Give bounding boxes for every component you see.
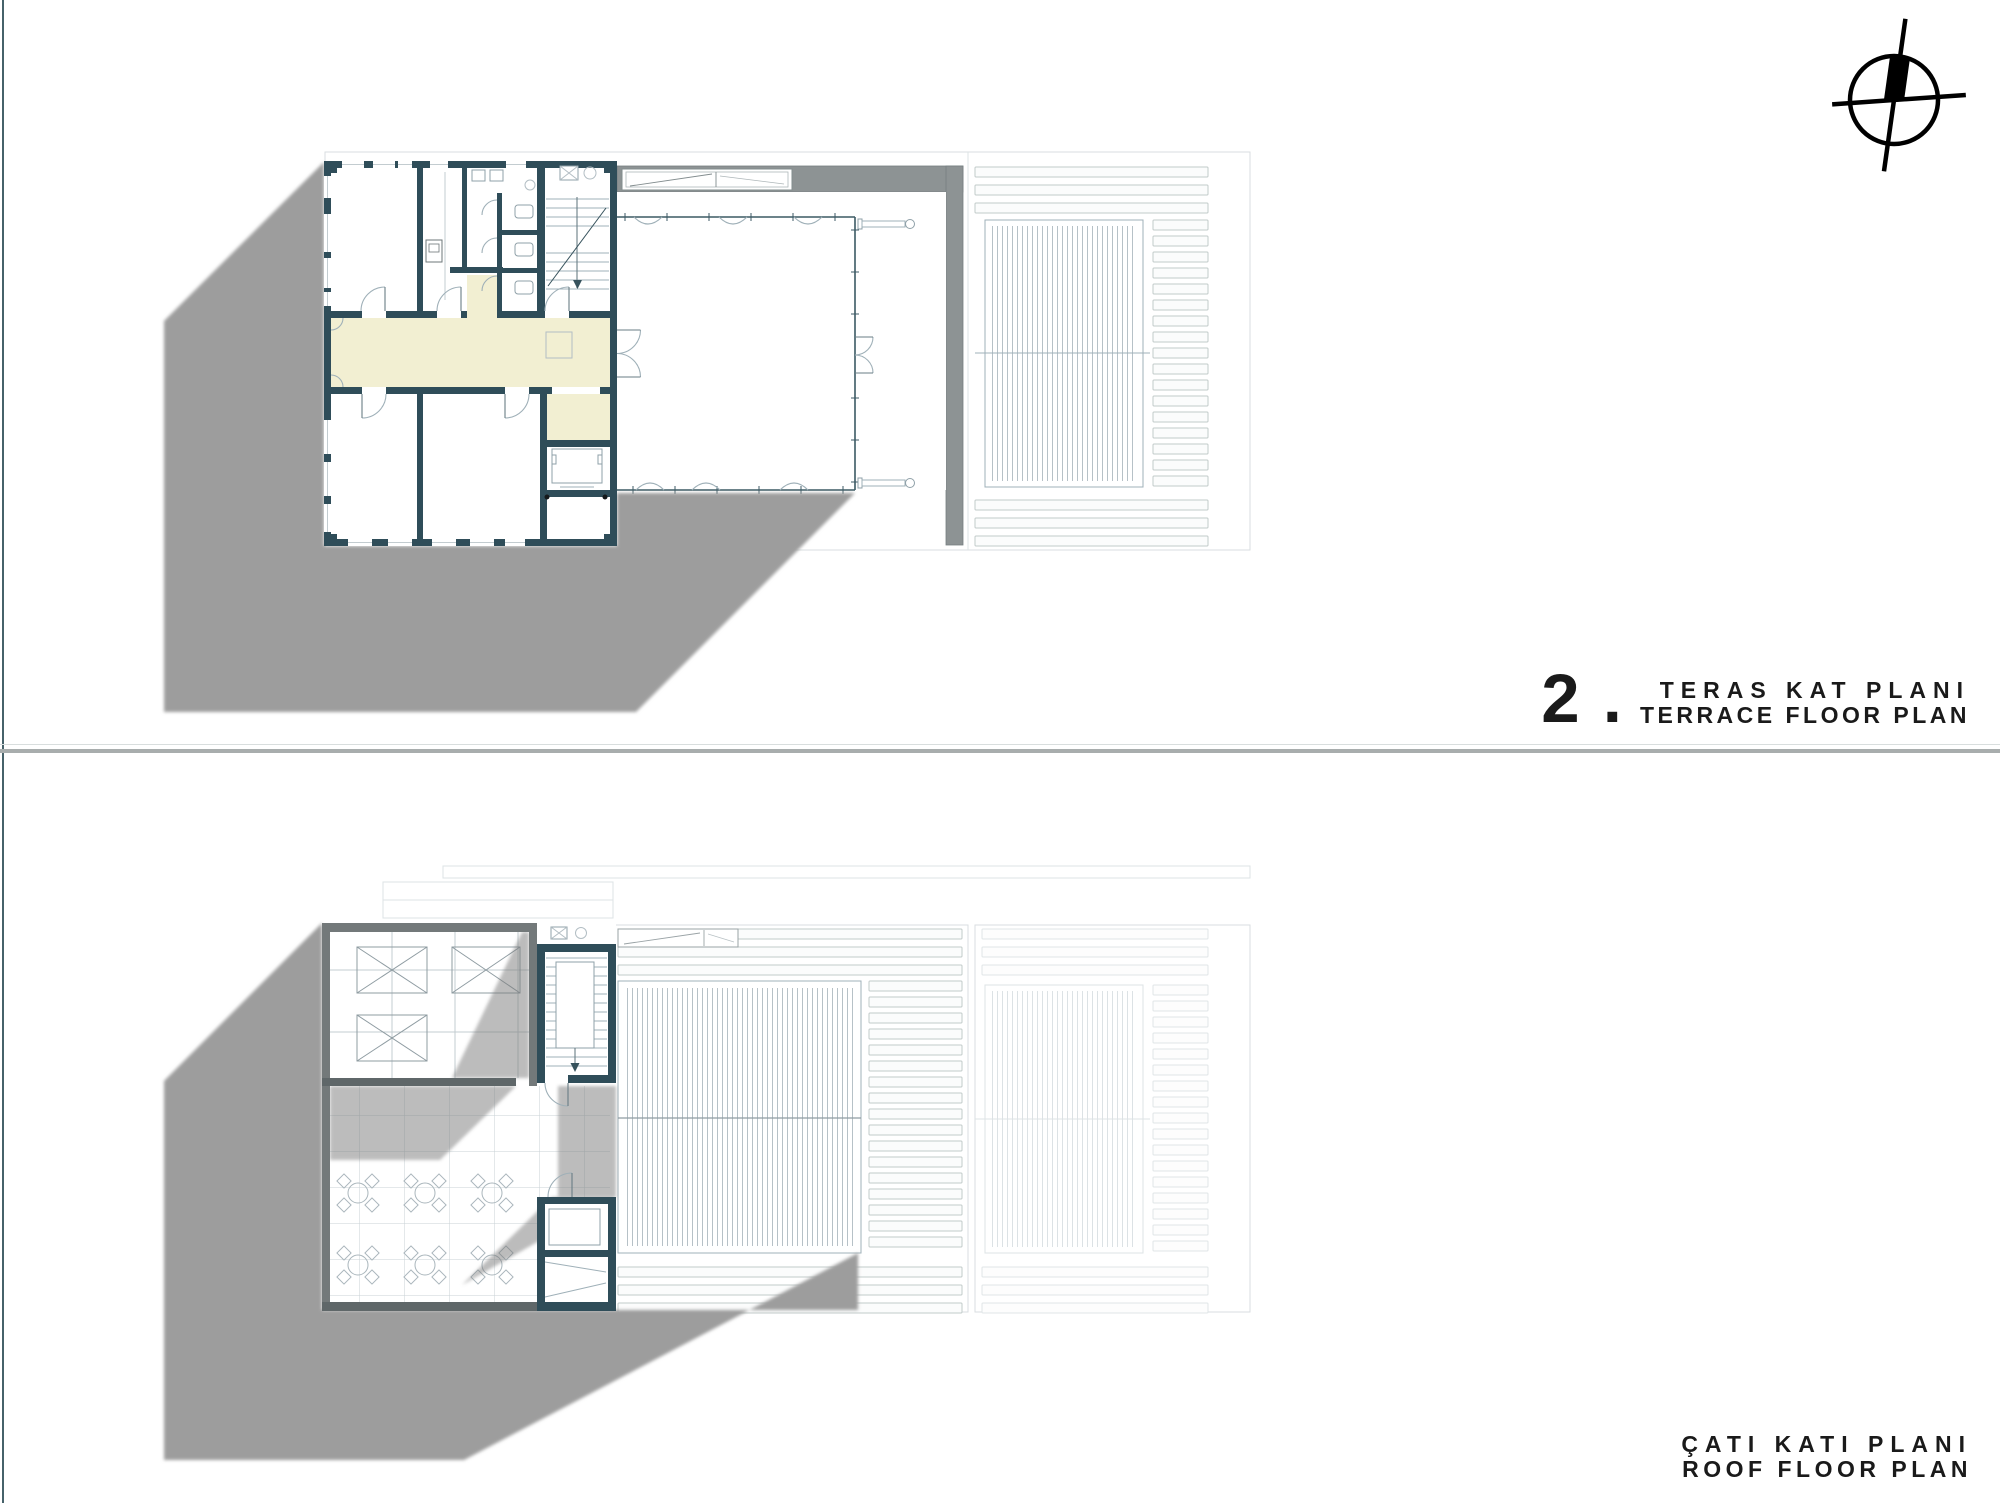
terrace-plan-title: 2 . TERAS KAT PLANI TERRACE FLOOR PLAN <box>1541 671 1970 728</box>
roof-floor-plan <box>164 866 1250 1460</box>
drawing-sheet: 2 . TERAS KAT PLANI TERRACE FLOOR PLAN Ç… <box>0 0 2000 1503</box>
plan-title-english: TERRACE FLOOR PLAN <box>1640 703 1970 728</box>
elevator <box>552 449 602 487</box>
roof-plan-title: ÇATI KATI PLANI ROOF FLOOR PLAN <box>1681 1432 1972 1482</box>
roof-hatch <box>618 929 738 947</box>
building-block <box>324 161 641 546</box>
plan-number: 2 . <box>1541 671 1624 728</box>
north-arrow-icon <box>1832 17 1966 172</box>
stair-core <box>537 923 616 1106</box>
panel-divider <box>0 749 2000 753</box>
plan-title-turkish: ÇATI KATI PLANI <box>1681 1432 1972 1457</box>
plan-title-english: ROOF FLOOR PLAN <box>1681 1457 1972 1482</box>
panel-divider-thin <box>0 744 2000 745</box>
terrace-floor-plan <box>164 152 1250 712</box>
skylight-strip <box>622 169 792 190</box>
roof-block <box>322 923 616 1311</box>
canopy-outline <box>383 866 1250 918</box>
hall <box>617 192 946 494</box>
plan-title-turkish: TERAS KAT PLANI <box>1640 678 1970 703</box>
